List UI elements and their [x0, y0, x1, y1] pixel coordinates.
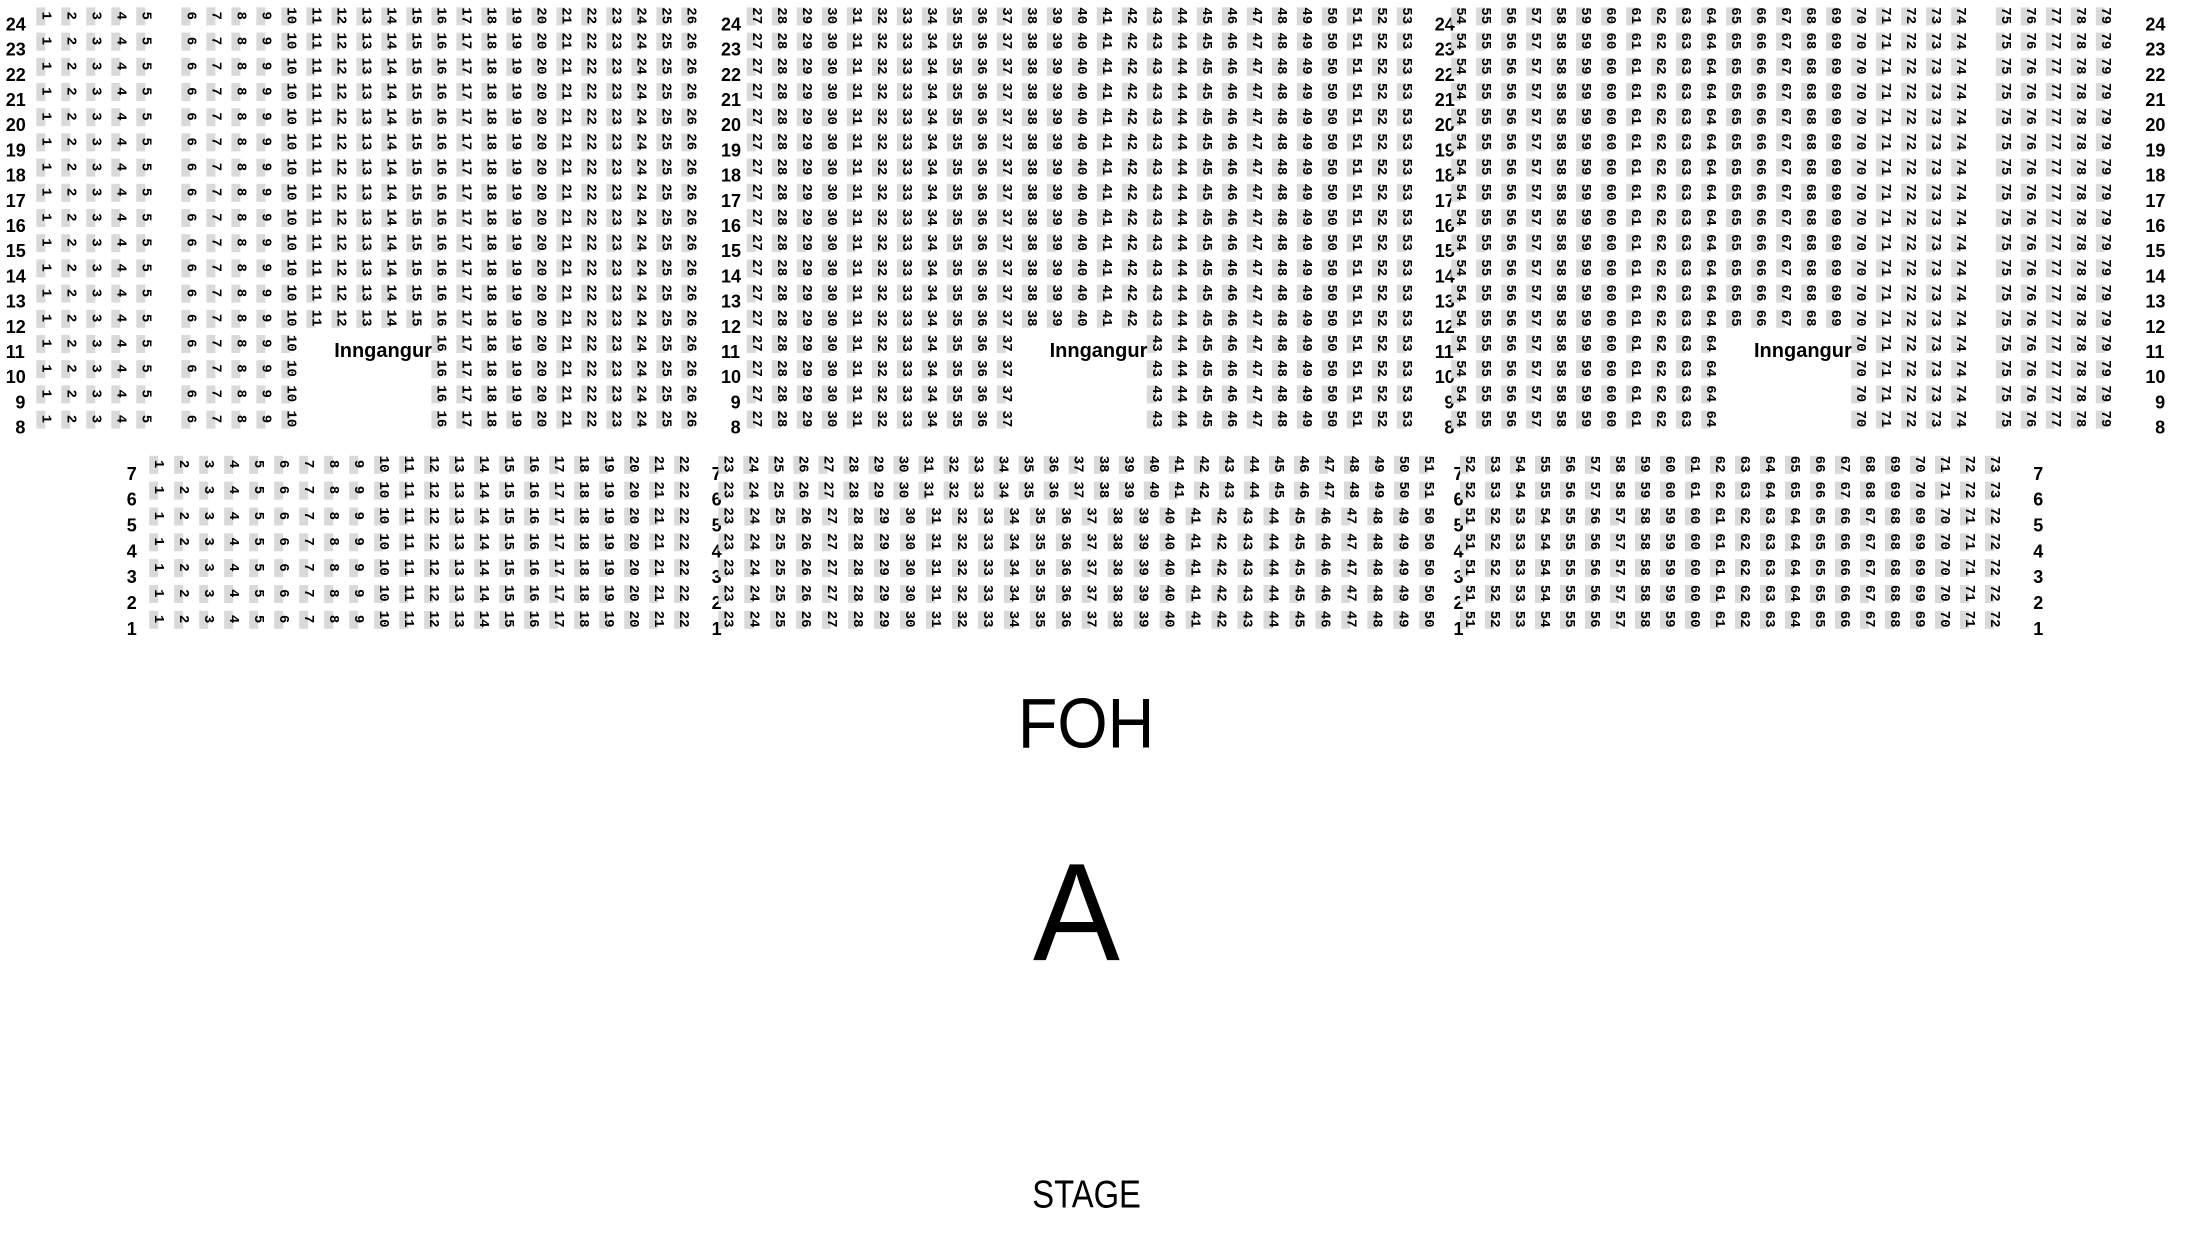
svg-text:34: 34 — [923, 7, 939, 24]
svg-text:52: 52 — [1373, 284, 1389, 301]
svg-text:10: 10 — [375, 559, 391, 576]
svg-text:32: 32 — [873, 360, 889, 377]
svg-text:44: 44 — [1173, 7, 1189, 24]
svg-text:59: 59 — [1661, 507, 1677, 524]
svg-text:76: 76 — [2022, 58, 2038, 75]
svg-text:25: 25 — [657, 410, 673, 427]
svg-text:27: 27 — [823, 559, 839, 576]
svg-text:18: 18 — [482, 259, 498, 276]
svg-text:68: 68 — [1886, 507, 1902, 524]
svg-text:65: 65 — [1727, 184, 1743, 201]
svg-text:36: 36 — [1057, 585, 1073, 602]
svg-text:66: 66 — [1811, 481, 1827, 498]
svg-text:35: 35 — [1031, 611, 1047, 628]
svg-text:38: 38 — [1095, 481, 1111, 498]
svg-text:10: 10 — [282, 385, 298, 402]
svg-text:79: 79 — [2097, 385, 2113, 402]
svg-text:18: 18 — [482, 360, 498, 377]
svg-text:51: 51 — [1461, 611, 1477, 628]
svg-text:64: 64 — [1702, 360, 1718, 377]
svg-text:7: 7 — [300, 563, 316, 571]
svg-text:10: 10 — [282, 108, 298, 125]
svg-text:52: 52 — [1461, 481, 1477, 498]
svg-text:46: 46 — [1223, 259, 1239, 276]
svg-text:17: 17 — [457, 32, 473, 49]
svg-text:30: 30 — [901, 559, 917, 576]
svg-text:12: 12 — [332, 209, 348, 226]
svg-text:2: 2 — [62, 163, 78, 171]
svg-text:12: 12 — [425, 507, 441, 524]
svg-text:28: 28 — [849, 559, 865, 576]
svg-text:64: 64 — [1702, 32, 1718, 49]
svg-text:56: 56 — [1586, 507, 1602, 524]
svg-text:16: 16 — [525, 456, 541, 473]
svg-text:29: 29 — [798, 32, 814, 49]
svg-text:36: 36 — [973, 58, 989, 75]
svg-text:59: 59 — [1577, 83, 1593, 100]
svg-text:32: 32 — [873, 158, 889, 175]
svg-text:45: 45 — [1270, 481, 1286, 498]
svg-text:32: 32 — [945, 481, 961, 498]
svg-text:6: 6 — [182, 389, 198, 397]
svg-text:63: 63 — [1677, 410, 1693, 427]
svg-text:12: 12 — [332, 310, 348, 327]
svg-text:53: 53 — [1398, 58, 1414, 75]
svg-text:40: 40 — [1161, 585, 1177, 602]
svg-text:14: 14 — [475, 481, 491, 498]
svg-text:13: 13 — [721, 292, 741, 312]
svg-text:50: 50 — [1323, 108, 1339, 125]
svg-text:52: 52 — [1373, 184, 1389, 201]
svg-text:21: 21 — [557, 360, 573, 377]
svg-text:20: 20 — [532, 58, 548, 75]
svg-text:77: 77 — [2047, 310, 2063, 327]
svg-text:13: 13 — [450, 585, 466, 602]
svg-text:61: 61 — [1627, 58, 1643, 75]
svg-text:65: 65 — [1727, 259, 1743, 276]
svg-text:53: 53 — [1486, 481, 1502, 498]
svg-text:57: 57 — [1527, 158, 1543, 175]
svg-text:43: 43 — [1148, 32, 1164, 49]
svg-text:71: 71 — [1877, 7, 1893, 24]
svg-text:43: 43 — [1148, 310, 1164, 327]
svg-text:5: 5 — [250, 589, 266, 597]
svg-text:9: 9 — [257, 213, 273, 221]
svg-text:42: 42 — [1213, 585, 1229, 602]
svg-text:25: 25 — [657, 385, 673, 402]
svg-text:30: 30 — [823, 234, 839, 251]
svg-text:15: 15 — [500, 456, 516, 473]
svg-text:68: 68 — [1802, 158, 1818, 175]
svg-text:2: 2 — [62, 263, 78, 271]
svg-text:35: 35 — [948, 284, 964, 301]
svg-text:28: 28 — [773, 108, 789, 125]
svg-text:79: 79 — [2097, 32, 2113, 49]
svg-text:42: 42 — [1123, 259, 1139, 276]
svg-text:44: 44 — [1173, 209, 1189, 226]
svg-text:34: 34 — [923, 284, 939, 301]
svg-text:53: 53 — [1398, 360, 1414, 377]
svg-text:52: 52 — [1373, 83, 1389, 100]
svg-text:55: 55 — [1561, 559, 1577, 576]
svg-text:60: 60 — [1602, 335, 1618, 352]
svg-text:27: 27 — [748, 360, 764, 377]
svg-text:18: 18 — [482, 32, 498, 49]
svg-text:54: 54 — [1452, 410, 1468, 427]
svg-text:52: 52 — [1373, 310, 1389, 327]
svg-text:12: 12 — [6, 317, 26, 337]
svg-text:7: 7 — [207, 112, 223, 120]
svg-text:57: 57 — [1611, 533, 1627, 550]
svg-text:59: 59 — [1577, 234, 1593, 251]
svg-text:48: 48 — [1273, 83, 1289, 100]
svg-text:38: 38 — [1023, 133, 1039, 150]
svg-text:19: 19 — [600, 456, 616, 473]
svg-text:17: 17 — [457, 184, 473, 201]
svg-text:46: 46 — [1223, 335, 1239, 352]
svg-text:69: 69 — [1911, 507, 1927, 524]
svg-text:31: 31 — [848, 410, 864, 427]
svg-text:16: 16 — [432, 133, 448, 150]
svg-text:29: 29 — [798, 284, 814, 301]
svg-text:1: 1 — [37, 339, 53, 347]
svg-text:70: 70 — [1911, 481, 1927, 498]
svg-text:10: 10 — [282, 58, 298, 75]
svg-text:12: 12 — [332, 133, 348, 150]
svg-text:62: 62 — [1652, 7, 1668, 24]
svg-text:6: 6 — [182, 339, 198, 347]
svg-text:21: 21 — [557, 234, 573, 251]
svg-text:60: 60 — [1686, 559, 1702, 576]
svg-text:56: 56 — [1502, 410, 1518, 427]
svg-text:22: 22 — [675, 507, 691, 524]
svg-text:72: 72 — [1961, 456, 1977, 473]
svg-text:49: 49 — [1298, 310, 1314, 327]
svg-text:1: 1 — [150, 537, 166, 545]
svg-text:79: 79 — [2097, 83, 2113, 100]
svg-text:53: 53 — [1398, 310, 1414, 327]
svg-text:49: 49 — [1298, 158, 1314, 175]
svg-text:70: 70 — [1852, 335, 1868, 352]
svg-text:71: 71 — [1936, 481, 1952, 498]
svg-text:72: 72 — [1902, 184, 1918, 201]
svg-text:21: 21 — [650, 533, 666, 550]
svg-text:73: 73 — [1927, 83, 1943, 100]
svg-text:58: 58 — [1552, 385, 1568, 402]
svg-text:40: 40 — [1145, 481, 1161, 498]
svg-text:41: 41 — [1187, 559, 1203, 576]
svg-text:68: 68 — [1802, 58, 1818, 75]
svg-text:76: 76 — [2022, 83, 2038, 100]
svg-text:24: 24 — [745, 611, 761, 628]
svg-text:45: 45 — [1198, 234, 1214, 251]
svg-text:62: 62 — [1736, 533, 1752, 550]
svg-text:73: 73 — [1986, 481, 2002, 498]
svg-text:29: 29 — [870, 456, 886, 473]
svg-text:69: 69 — [1827, 284, 1843, 301]
svg-text:72: 72 — [1902, 7, 1918, 24]
svg-text:35: 35 — [948, 108, 964, 125]
svg-text:50: 50 — [1323, 32, 1339, 49]
svg-text:17: 17 — [550, 481, 566, 498]
svg-text:31: 31 — [848, 335, 864, 352]
svg-text:34: 34 — [923, 410, 939, 427]
svg-text:43: 43 — [1239, 559, 1255, 576]
svg-text:64: 64 — [1702, 158, 1718, 175]
svg-text:48: 48 — [1273, 360, 1289, 377]
svg-text:48: 48 — [1368, 585, 1384, 602]
svg-text:64: 64 — [1702, 385, 1718, 402]
svg-text:73: 73 — [1927, 335, 1943, 352]
svg-text:3: 3 — [87, 238, 103, 246]
svg-text:67: 67 — [1777, 259, 1793, 276]
svg-text:54: 54 — [1452, 335, 1468, 352]
svg-text:12: 12 — [332, 7, 348, 24]
svg-text:14: 14 — [382, 58, 398, 75]
svg-text:33: 33 — [898, 108, 914, 125]
svg-text:20: 20 — [532, 284, 548, 301]
svg-text:69: 69 — [1827, 133, 1843, 150]
svg-text:47: 47 — [1248, 234, 1264, 251]
svg-text:14: 14 — [6, 266, 26, 286]
svg-text:47: 47 — [1248, 259, 1264, 276]
svg-text:1: 1 — [150, 563, 166, 571]
svg-text:4: 4 — [112, 238, 128, 246]
svg-text:16: 16 — [432, 310, 448, 327]
svg-text:3: 3 — [87, 112, 103, 120]
svg-text:12: 12 — [425, 559, 441, 576]
svg-text:72: 72 — [1986, 611, 2002, 628]
svg-text:33: 33 — [898, 284, 914, 301]
svg-text:10: 10 — [375, 456, 391, 473]
svg-text:4: 4 — [112, 11, 128, 19]
svg-text:21: 21 — [650, 456, 666, 473]
svg-text:46: 46 — [1295, 456, 1311, 473]
svg-text:65: 65 — [1727, 32, 1743, 49]
svg-text:53: 53 — [1511, 611, 1527, 628]
svg-text:68: 68 — [1802, 284, 1818, 301]
svg-text:79: 79 — [2097, 184, 2113, 201]
svg-text:1: 1 — [37, 37, 53, 45]
svg-text:36: 36 — [973, 310, 989, 327]
svg-text:26: 26 — [682, 385, 698, 402]
svg-text:47: 47 — [1342, 559, 1358, 576]
svg-text:12: 12 — [425, 611, 441, 628]
svg-text:56: 56 — [1502, 284, 1518, 301]
svg-text:45: 45 — [1290, 533, 1306, 550]
svg-text:70: 70 — [1852, 58, 1868, 75]
svg-text:29: 29 — [798, 7, 814, 24]
svg-text:46: 46 — [1316, 507, 1332, 524]
svg-text:14: 14 — [721, 266, 741, 286]
svg-text:9: 9 — [257, 11, 273, 19]
svg-text:34: 34 — [923, 310, 939, 327]
svg-text:60: 60 — [1602, 385, 1618, 402]
svg-text:33: 33 — [979, 585, 995, 602]
svg-text:60: 60 — [1602, 259, 1618, 276]
svg-text:53: 53 — [1511, 507, 1527, 524]
svg-text:7: 7 — [207, 62, 223, 70]
svg-text:41: 41 — [1098, 133, 1114, 150]
svg-text:73: 73 — [1927, 158, 1943, 175]
svg-text:45: 45 — [1198, 284, 1214, 301]
svg-text:41: 41 — [1098, 158, 1114, 175]
svg-text:3: 3 — [87, 37, 103, 45]
svg-text:53: 53 — [1398, 184, 1414, 201]
svg-text:17: 17 — [550, 611, 566, 628]
svg-text:8: 8 — [232, 238, 248, 246]
svg-text:72: 72 — [1961, 481, 1977, 498]
svg-text:25: 25 — [657, 184, 673, 201]
svg-text:24: 24 — [744, 456, 760, 473]
svg-text:8: 8 — [325, 486, 341, 494]
svg-text:50: 50 — [1395, 456, 1411, 473]
svg-text:4: 4 — [225, 486, 241, 494]
svg-text:74: 74 — [1952, 259, 1968, 276]
svg-text:38: 38 — [1023, 58, 1039, 75]
svg-text:49: 49 — [1298, 108, 1314, 125]
svg-text:18: 18 — [575, 585, 591, 602]
svg-text:41: 41 — [1098, 58, 1114, 75]
svg-text:33: 33 — [898, 184, 914, 201]
svg-text:5: 5 — [250, 615, 266, 623]
svg-text:53: 53 — [1398, 158, 1414, 175]
svg-text:49: 49 — [1394, 533, 1410, 550]
svg-text:58: 58 — [1611, 481, 1627, 498]
svg-text:25: 25 — [657, 133, 673, 150]
svg-text:41: 41 — [1187, 611, 1203, 628]
svg-text:1: 1 — [37, 163, 53, 171]
svg-text:13: 13 — [357, 259, 373, 276]
svg-text:25: 25 — [657, 158, 673, 175]
svg-text:61: 61 — [1686, 481, 1702, 498]
svg-text:5: 5 — [250, 460, 266, 468]
svg-text:20: 20 — [532, 32, 548, 49]
svg-text:21: 21 — [650, 481, 666, 498]
svg-text:33: 33 — [898, 360, 914, 377]
svg-text:62: 62 — [1652, 32, 1668, 49]
svg-text:18: 18 — [482, 284, 498, 301]
svg-text:47: 47 — [1248, 184, 1264, 201]
svg-text:3: 3 — [87, 263, 103, 271]
svg-text:67: 67 — [1777, 284, 1793, 301]
svg-text:23: 23 — [719, 507, 735, 524]
svg-text:24: 24 — [632, 209, 648, 226]
svg-text:28: 28 — [773, 360, 789, 377]
svg-text:70: 70 — [1936, 585, 1952, 602]
svg-text:9: 9 — [350, 589, 366, 597]
svg-text:19: 19 — [507, 133, 523, 150]
svg-text:6: 6 — [182, 163, 198, 171]
svg-text:60: 60 — [1686, 611, 1702, 628]
svg-text:54: 54 — [1452, 310, 1468, 327]
svg-text:68: 68 — [1886, 533, 1902, 550]
svg-text:43: 43 — [1148, 108, 1164, 125]
svg-text:52: 52 — [1461, 456, 1477, 473]
svg-text:39: 39 — [1048, 158, 1064, 175]
svg-text:68: 68 — [1802, 259, 1818, 276]
svg-text:2: 2 — [62, 364, 78, 372]
svg-text:4: 4 — [225, 563, 241, 571]
svg-text:2: 2 — [175, 512, 191, 520]
svg-text:20: 20 — [532, 83, 548, 100]
svg-text:70: 70 — [1852, 32, 1868, 49]
svg-text:15: 15 — [500, 559, 516, 576]
svg-text:63: 63 — [1677, 108, 1693, 125]
svg-text:4: 4 — [127, 541, 137, 561]
svg-text:19: 19 — [507, 360, 523, 377]
svg-text:19: 19 — [507, 259, 523, 276]
svg-text:56: 56 — [1502, 335, 1518, 352]
svg-text:7: 7 — [207, 263, 223, 271]
svg-text:22: 22 — [675, 611, 691, 628]
svg-text:78: 78 — [2072, 259, 2088, 276]
svg-text:65: 65 — [1727, 7, 1743, 24]
svg-text:69: 69 — [1827, 259, 1843, 276]
svg-text:20: 20 — [721, 115, 741, 135]
svg-text:37: 37 — [1083, 533, 1099, 550]
svg-text:30: 30 — [823, 284, 839, 301]
svg-text:32: 32 — [953, 533, 969, 550]
svg-text:30: 30 — [823, 335, 839, 352]
svg-text:66: 66 — [1752, 108, 1768, 125]
svg-text:46: 46 — [1223, 310, 1239, 327]
svg-text:74: 74 — [1952, 184, 1968, 201]
svg-text:60: 60 — [1602, 209, 1618, 226]
svg-text:58: 58 — [1552, 7, 1568, 24]
svg-text:55: 55 — [1477, 385, 1493, 402]
svg-text:68: 68 — [1802, 133, 1818, 150]
svg-text:18: 18 — [575, 507, 591, 524]
svg-text:23: 23 — [607, 209, 623, 226]
svg-text:75: 75 — [1997, 184, 2013, 201]
svg-text:48: 48 — [1273, 32, 1289, 49]
svg-text:60: 60 — [1602, 234, 1618, 251]
svg-text:32: 32 — [873, 7, 889, 24]
svg-text:23: 23 — [2145, 40, 2165, 60]
svg-text:67: 67 — [1861, 585, 1877, 602]
svg-text:49: 49 — [1298, 335, 1314, 352]
svg-text:76: 76 — [2022, 133, 2038, 150]
svg-text:26: 26 — [682, 184, 698, 201]
svg-text:6: 6 — [182, 238, 198, 246]
svg-text:2: 2 — [175, 486, 191, 494]
svg-text:58: 58 — [1552, 184, 1568, 201]
svg-text:46: 46 — [1223, 410, 1239, 427]
svg-text:63: 63 — [1761, 585, 1777, 602]
svg-text:20: 20 — [532, 133, 548, 150]
svg-text:8: 8 — [325, 615, 341, 623]
svg-text:19: 19 — [721, 140, 741, 160]
svg-text:27: 27 — [748, 335, 764, 352]
svg-text:9: 9 — [257, 389, 273, 397]
svg-text:24: 24 — [745, 507, 761, 524]
svg-text:24: 24 — [632, 234, 648, 251]
svg-text:55: 55 — [1477, 234, 1493, 251]
svg-text:39: 39 — [1048, 133, 1064, 150]
svg-text:49: 49 — [1298, 209, 1314, 226]
svg-text:42: 42 — [1195, 456, 1211, 473]
svg-text:72: 72 — [1902, 58, 1918, 75]
svg-text:73: 73 — [1986, 456, 2002, 473]
svg-text:1: 1 — [150, 615, 166, 623]
svg-text:1: 1 — [150, 512, 166, 520]
svg-text:26: 26 — [682, 7, 698, 24]
svg-text:60: 60 — [1602, 108, 1618, 125]
svg-text:47: 47 — [1320, 481, 1336, 498]
svg-text:4: 4 — [112, 415, 128, 423]
svg-text:39: 39 — [1048, 234, 1064, 251]
